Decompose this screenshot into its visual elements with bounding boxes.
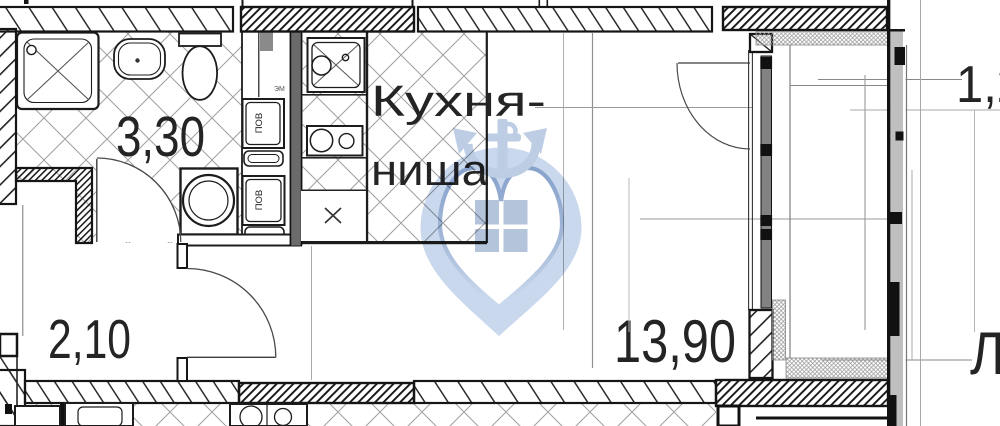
svg-text:2,10: 2,10	[48, 308, 131, 370]
svg-text:ПОВ: ПОВ	[254, 190, 265, 211]
svg-text:Кухня-: Кухня-	[371, 77, 546, 126]
svg-text:3,30: 3,30	[116, 105, 205, 168]
svg-text:1,2: 1,2	[956, 56, 1000, 114]
svg-text:ПОВ: ПОВ	[254, 113, 265, 134]
svg-text:ЭМ: ЭМ	[274, 86, 285, 93]
svg-text:13,90: 13,90	[614, 307, 736, 375]
